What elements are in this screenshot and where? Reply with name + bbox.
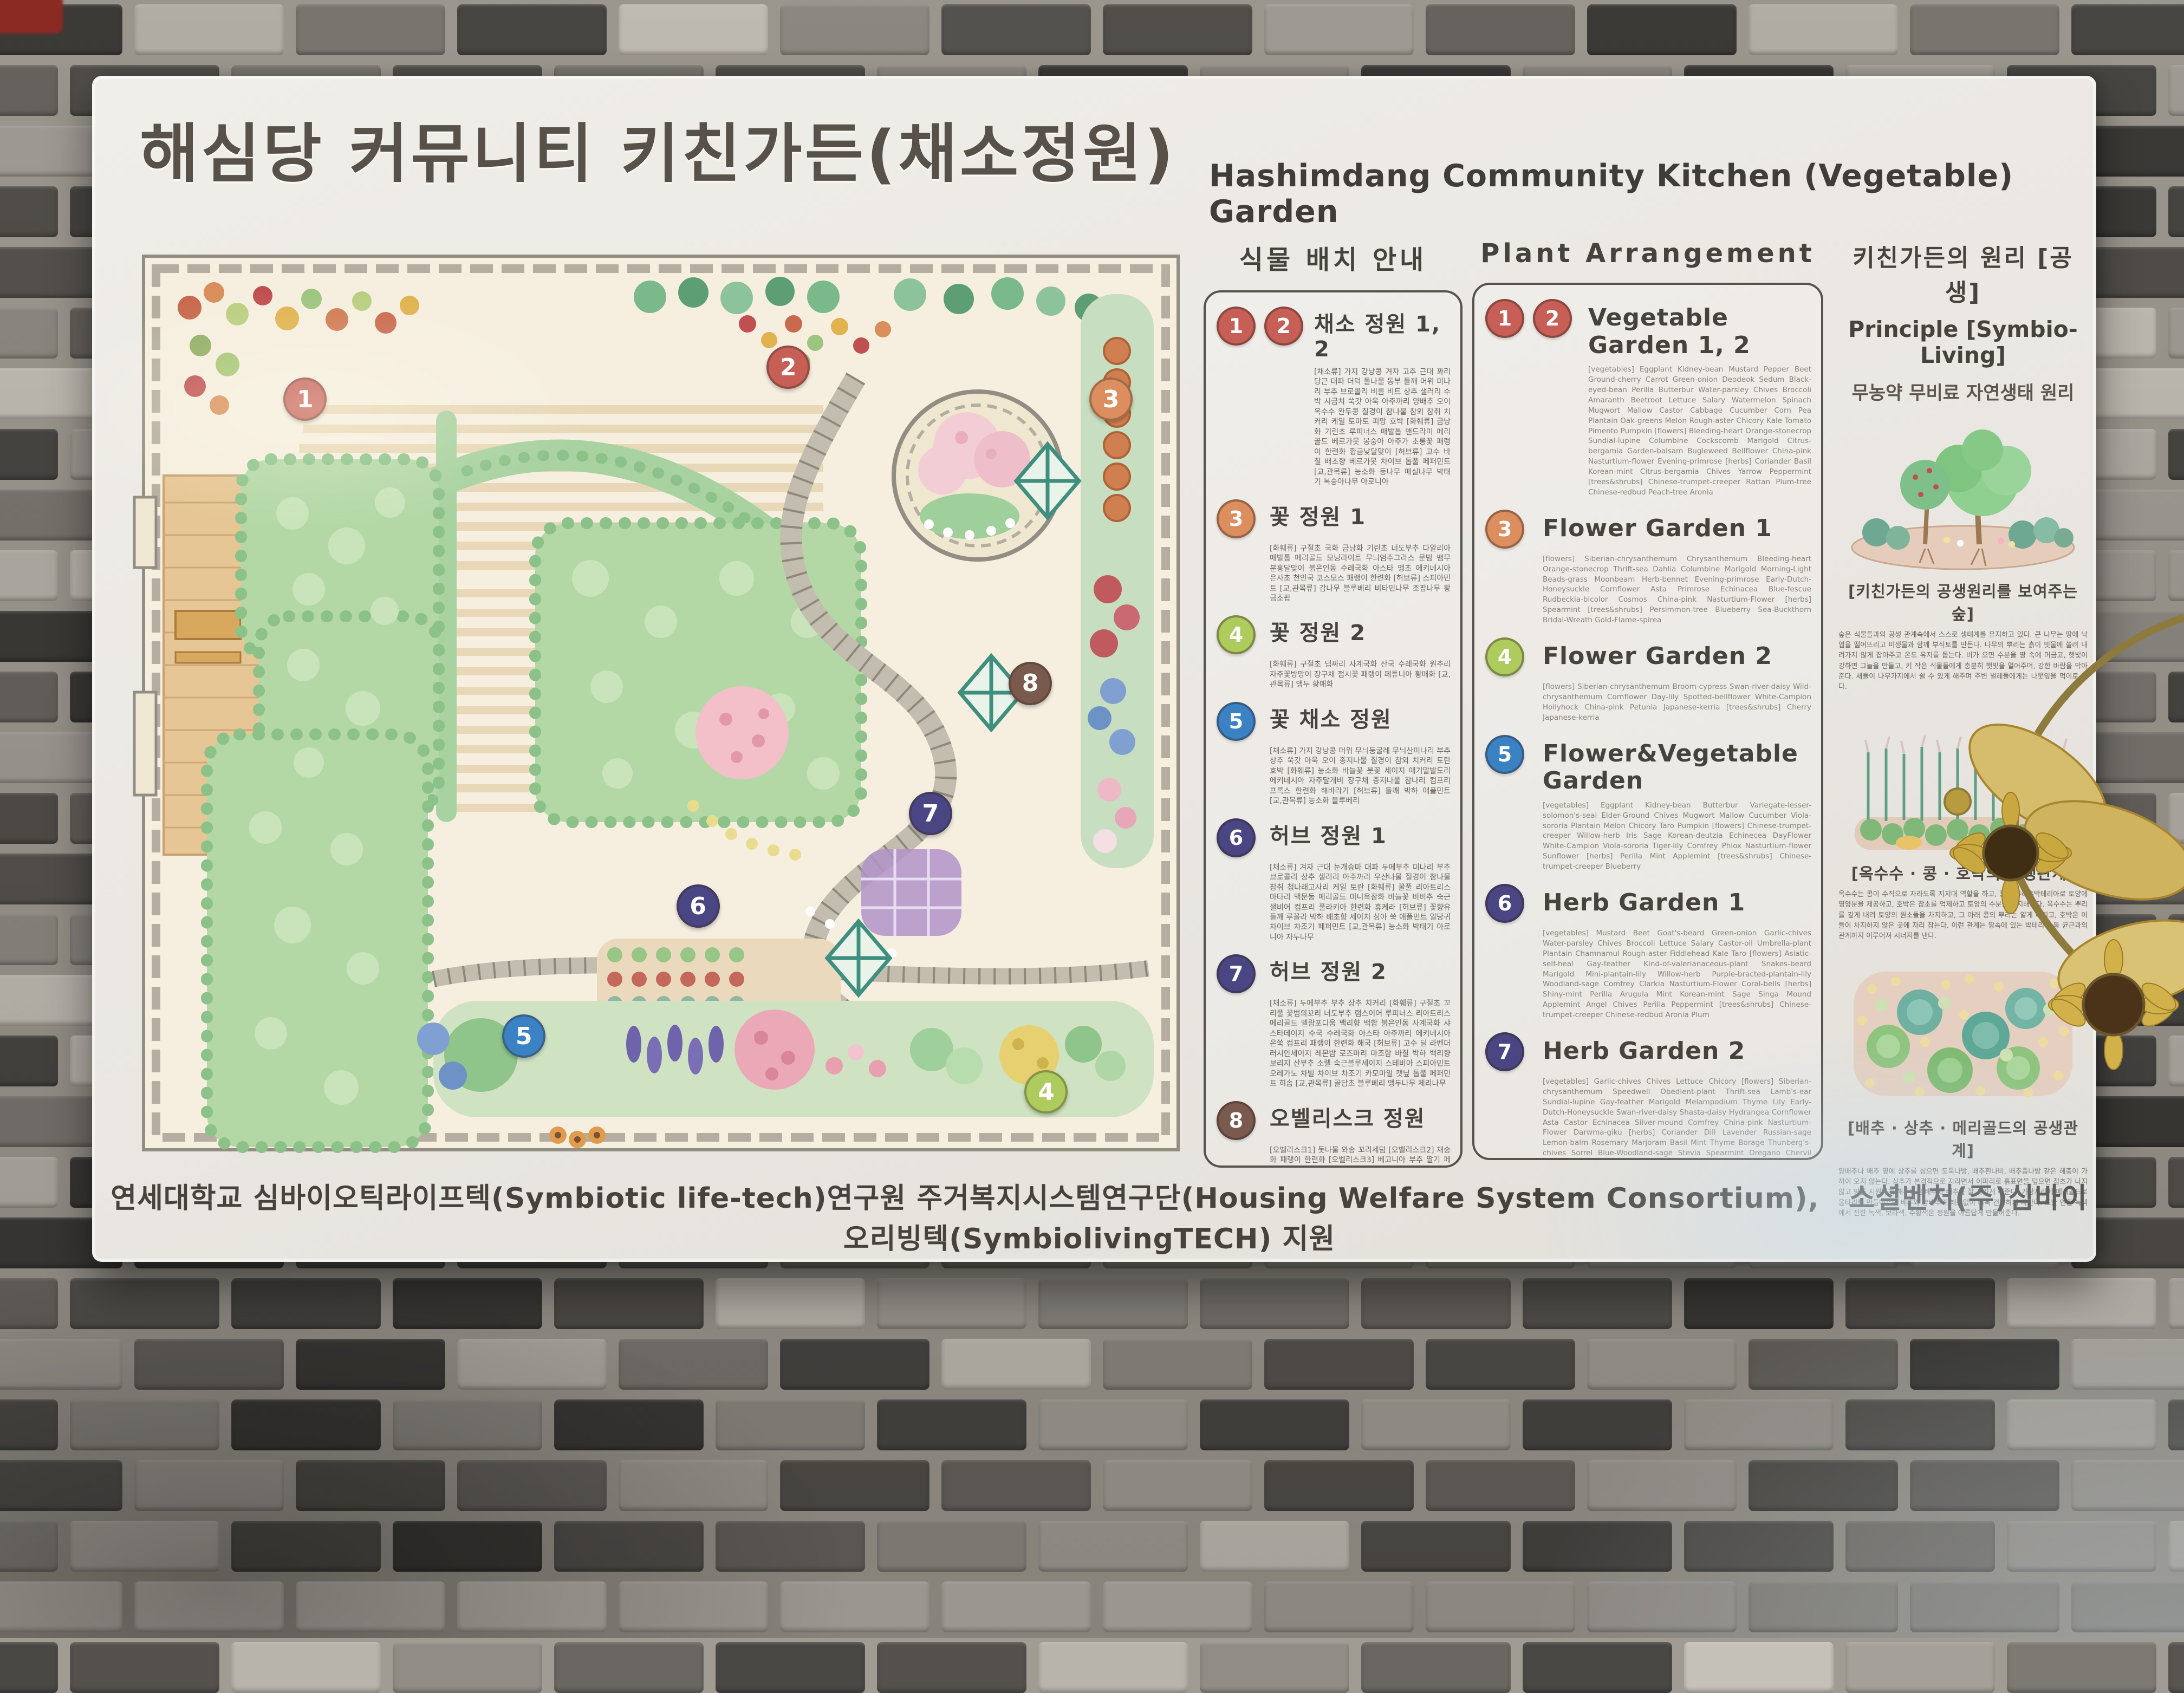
item-title: Herb Garden 2	[1543, 1032, 1811, 1071]
figure-corn-desc: 옥수수는 콩이 수직으로 자라도록 지지대 역할을 하고, 콩은 뿌리혹박테리아…	[1838, 889, 2088, 941]
list-item-flower-vegetable-garden: 5 꽃 채소 정원 [채소류] 가지 강낭콩 머위 무늬둥굴레 무늬산미나리 부…	[1215, 702, 1451, 806]
item-title: 채소 정원 1, 2	[1314, 307, 1451, 362]
item-title: 허브 정원 1	[1270, 818, 1451, 857]
list-item-herb-garden-1-en: 6 Herb Garden 1 [vegetables] Mustard Bee…	[1484, 884, 1811, 1020]
english-list-box: 1 2 Vegetable Garden 1, 2 [vegetables] E…	[1472, 283, 1823, 1160]
korean-list-box: 1 2 채소 정원 1, 2 [채소류] 가지 강낭콩 겨자 고추 근대 꽈리 …	[1204, 290, 1462, 1168]
item-title: 꽃 채소 정원	[1270, 702, 1451, 741]
map-marker-8: 8	[1009, 662, 1052, 705]
badge-2: 2	[1533, 299, 1572, 338]
item-badges: 1 2	[1217, 307, 1303, 346]
item-title: Vegetable Garden 1, 2	[1588, 299, 1811, 359]
item-title: 허브 정원 2	[1270, 954, 1451, 993]
map-marker-2: 2	[766, 346, 810, 389]
figure-forest-desc: 숲은 식물들과의 공생 관계속에서 스스로 생태계를 유지하고 있다. 큰 나무…	[1838, 630, 2088, 692]
item-desc: [flowers] Siberian-chrysanthemum Broom-c…	[1543, 682, 1811, 723]
cabbage-marigold-illustration	[1844, 955, 2082, 1112]
credit-left: 연세대학교 심바이오틱라이프텍(Symbiotic life-tech)연구원 …	[110, 1182, 1819, 1215]
item-desc: [vegetables] Eggplant Kidney-bean Mustar…	[1588, 364, 1811, 498]
figure-corn: [옥수수 · 콩 · 호박의 공생관계] 옥수수는 콩이 수직으로 자라도록 지…	[1838, 706, 2088, 941]
item-desc: [vegetables] Eggplant Kidney-bean Butter…	[1543, 800, 1811, 872]
map-marker-5: 5	[502, 1014, 545, 1058]
list-item-herb-garden-2-en: 7 Herb Garden 2 [vegetables] Garlic-chiv…	[1484, 1032, 1811, 1160]
principle-panel: 키친가든의 원리 [공생] Principle [Symbio-Living] …	[1838, 238, 2088, 1219]
badge-4: 4	[1217, 615, 1256, 654]
corn-field-illustration	[1844, 706, 2082, 858]
badge-6: 6	[1217, 818, 1256, 857]
list-item-flower-garden-1-en: 3 Flower Garden 1 [flowers] Siberian-chr…	[1484, 510, 1811, 626]
item-title: 꽃 정원 1	[1270, 499, 1451, 538]
plant-list-korean: 식물 배치 안내 1 2 채소 정원 1, 2 [채소류] 가지 강낭콩 겨자 …	[1204, 238, 1462, 1168]
badge-4: 4	[1485, 637, 1524, 676]
item-title: 오벨리스크 정원	[1270, 1101, 1451, 1140]
badge-2: 2	[1264, 307, 1303, 346]
map-marker-6: 6	[677, 884, 720, 928]
item-desc: [채소류] 가지 강낭콩 겨자 고추 근대 꽈리 당근 대파 더덕 돌나물 동부…	[1314, 367, 1451, 487]
item-desc: [vegetables] Garlic-chives Chives Lettuc…	[1543, 1077, 1811, 1160]
item-title: Herb Garden 1	[1543, 884, 1811, 923]
map-marker-3: 3	[1089, 377, 1133, 421]
list-item-vegetable-garden: 1 2 채소 정원 1, 2 [채소류] 가지 강낭콩 겨자 고추 근대 꽈리 …	[1215, 307, 1451, 487]
red-corner-object	[0, 0, 63, 34]
principle-title-korean: 키친가든의 원리 [공생]	[1838, 238, 2088, 308]
list-item-vegetable-garden-en: 1 2 Vegetable Garden 1, 2 [vegetables] E…	[1484, 299, 1811, 498]
principle-subtitle: 무농약 무비료 자연생태 원리	[1838, 378, 2088, 405]
list-item-flower-garden-2: 4 꽃 정원 2 [화훼류] 구절초 댑싸리 사계국화 산국 수레국화 원추리 …	[1215, 615, 1451, 689]
item-desc: [오벨리스크1] 돗나물 와송 꼬리세덤 [오벨리스크2] 채송화 패랭이 한련…	[1270, 1145, 1451, 1168]
forest-illustration	[1844, 419, 2082, 576]
list-item-herb-garden-1: 6 허브 정원 1 [채소류] 겨자 근대 눈개승마 대파 두메부추 미나리 부…	[1215, 818, 1451, 943]
english-list-header: Plant Arrangement	[1472, 238, 1823, 269]
list-item-obelisk-garden: 8 오벨리스크 정원 [오벨리스크1] 돗나물 와송 꼬리세덤 [오벨리스크2]…	[1215, 1101, 1451, 1168]
item-desc: [vegetables] Mustard Beet Goat's-beard G…	[1543, 928, 1811, 1020]
item-desc: [채소류] 두메부추 부추 상추 치커리 [화훼류] 구절초 꼬리풀 꽃범의꼬리…	[1270, 999, 1451, 1089]
plant-list-english: Plant Arrangement 1 2 Vegetable Garden 1…	[1472, 238, 1823, 1160]
garden-map: 12345678	[130, 243, 1192, 1159]
item-title: Flower Garden 1	[1543, 510, 1811, 549]
credit-line: 연세대학교 심바이오틱라이프텍(Symbiotic life-tech)연구원 …	[92, 1175, 2096, 1256]
list-item-flower-garden-2-en: 4 Flower Garden 2 [flowers] Siberian-chr…	[1484, 637, 1811, 723]
badge-8: 8	[1217, 1101, 1256, 1140]
list-item-flower-garden-1: 3 꽃 정원 1 [화훼류] 구절초 국화 금낭화 기린초 너도부추 다알리아 …	[1215, 499, 1451, 604]
garden-sign-board: 해심당 커뮤니티 키친가든(채소정원) Hashimdang Community…	[92, 76, 2096, 1262]
item-desc: [채소류] 가지 강낭콩 머위 무늬둥굴레 무늬산미나리 부추 상추 쑥갓 아욱…	[1270, 746, 1451, 806]
item-title: 꽃 정원 2	[1270, 615, 1451, 654]
figure-corn-caption: [옥수수 · 콩 · 호박의 공생관계]	[1838, 861, 2088, 884]
map-marker-layer: 12345678	[130, 243, 1192, 1159]
map-marker-7: 7	[909, 792, 952, 835]
map-marker-1: 1	[283, 377, 327, 421]
principle-title-english: Principle [Symbio-Living]	[1838, 316, 2088, 368]
badge-1: 1	[1485, 299, 1524, 338]
badge-3: 3	[1485, 510, 1524, 549]
sign-title-korean: 해심당 커뮤니티 키친가든(채소정원)	[140, 102, 1176, 194]
list-item-flower-vegetable-garden-en: 5 Flower&Vegetable Garden [vegetables] E…	[1484, 735, 1811, 872]
badge-7: 7	[1485, 1032, 1524, 1071]
badge-5: 5	[1217, 702, 1256, 741]
item-title: Flower Garden 2	[1543, 637, 1811, 676]
item-desc: [화훼류] 구절초 국화 금낭화 기린초 너도부추 다알리아 매발톱 메리골드 …	[1270, 544, 1451, 604]
figure-forest: [키친가든의 공생원리를 보여주는 숲] 숲은 식물들과의 공생 관계속에서 스…	[1838, 419, 2088, 692]
badge-7: 7	[1217, 954, 1256, 993]
sign-title-english: Hashimdang Community Kitchen (Vegetable)…	[1209, 158, 2096, 230]
item-title: Flower&Vegetable Garden	[1543, 735, 1811, 795]
figure-forest-caption: [키친가든의 공생원리를 보여주는 숲]	[1838, 579, 2088, 624]
badge-6: 6	[1485, 884, 1524, 923]
list-item-herb-garden-2: 7 허브 정원 2 [채소류] 두메부추 부추 상추 치커리 [화훼류] 구절초…	[1215, 954, 1451, 1089]
badge-1: 1	[1217, 307, 1256, 346]
map-marker-4: 4	[1024, 1070, 1068, 1114]
item-desc: [채소류] 겨자 근대 눈개승마 대파 두메부추 미나리 부추 브로콜리 상추 …	[1270, 863, 1451, 943]
badge-3: 3	[1217, 499, 1256, 538]
badge-5: 5	[1485, 735, 1524, 774]
item-desc: [화훼류] 구절초 댑싸리 사계국화 산국 수레국화 원추리 자주꽃방망이 장구…	[1270, 660, 1451, 689]
item-badges: 1 2	[1485, 299, 1572, 338]
item-desc: [flowers] Siberian-chrysanthemum Chrysan…	[1543, 554, 1811, 626]
korean-list-header: 식물 배치 안내	[1204, 238, 1462, 276]
figure-cabbage-caption: [배추 · 상추 · 메리골드의 공생관계]	[1838, 1116, 2088, 1161]
